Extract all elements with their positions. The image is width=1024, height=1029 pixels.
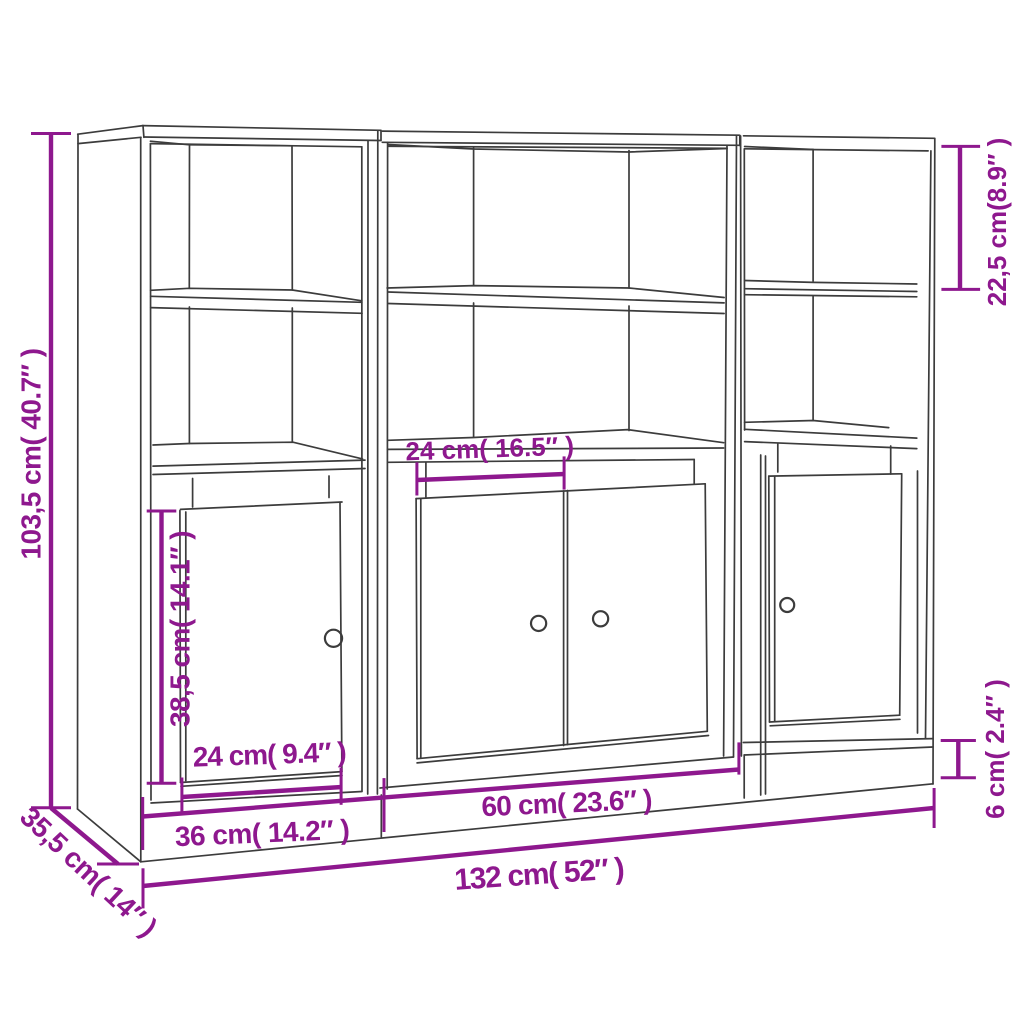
svg-text:103,5 cm( 40.7″ ): 103,5 cm( 40.7″ ) bbox=[16, 348, 47, 559]
svg-text:38,5 cm( 14.1″ ): 38,5 cm( 14.1″ ) bbox=[165, 531, 196, 727]
svg-text:22,5 cm(8.9″ ): 22,5 cm(8.9″ ) bbox=[982, 138, 1012, 307]
svg-text:24 cm( 16.5″ ): 24 cm( 16.5″ ) bbox=[405, 430, 574, 466]
svg-text:36 cm( 14.2″ ): 36 cm( 14.2″ ) bbox=[174, 814, 350, 853]
svg-text:24 cm( 9.4″ ): 24 cm( 9.4″ ) bbox=[192, 736, 346, 772]
svg-text:60 cm( 23.6″ ): 60 cm( 23.6″ ) bbox=[481, 784, 653, 822]
svg-text:132 cm( 52″ ): 132 cm( 52″ ) bbox=[453, 852, 624, 897]
svg-text:6 cm( 2.4″ ): 6 cm( 2.4″ ) bbox=[980, 679, 1010, 819]
